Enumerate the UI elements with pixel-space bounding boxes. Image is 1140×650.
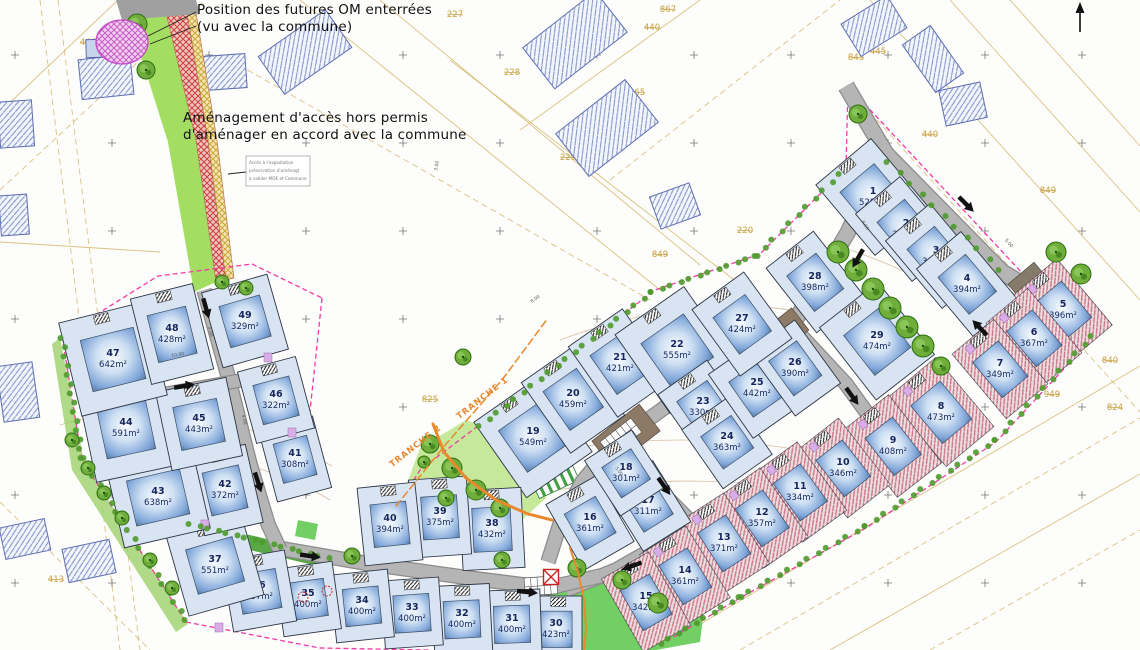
hedge-dot <box>1088 333 1094 339</box>
north-arrow-icon <box>1076 2 1085 32</box>
lot-number: 5 <box>1060 299 1067 310</box>
lot-number: 4 <box>964 273 971 284</box>
hedge-dot <box>135 545 141 551</box>
hedge-dot <box>198 523 204 529</box>
driveway-hatch-icon <box>432 479 448 489</box>
hedge-dot <box>780 228 786 234</box>
hedge-dot <box>745 589 751 595</box>
hedge-dot <box>73 427 79 433</box>
tree-icon <box>239 281 253 295</box>
hedge-dot <box>685 276 691 282</box>
garden-shed <box>215 623 223 632</box>
hedge-dot <box>527 383 533 389</box>
hedge-dot <box>596 329 602 335</box>
tree-icon <box>849 105 867 123</box>
existing-building <box>523 0 628 89</box>
lot-number: 9 <box>890 435 897 446</box>
lot-area: 371m² <box>710 544 738 554</box>
hedge-dot <box>723 263 729 269</box>
hedge-dot <box>666 282 672 288</box>
hedge-dot <box>124 527 130 533</box>
survey-cross-icon <box>787 227 795 235</box>
survey-cross-icon <box>690 227 698 235</box>
hedge-dot <box>664 636 670 642</box>
hedge-dot <box>68 381 74 387</box>
hedge-dot <box>65 363 71 369</box>
existing-building <box>0 519 51 560</box>
hedge-dot <box>573 349 579 355</box>
survey-cross-icon <box>981 403 989 411</box>
hedge-dot <box>777 572 783 578</box>
hedge-dot <box>186 521 192 527</box>
om-note-line2: (vu avec la commune) <box>197 19 432 36</box>
hedge-dot <box>874 517 880 523</box>
driveway-hatch-icon <box>353 573 369 584</box>
hedge-dot <box>784 567 790 573</box>
site-plan-stage: 2272284408652298674468452208498254404458… <box>0 0 1140 650</box>
tree-icon <box>81 461 95 475</box>
cadastral-line <box>930 530 1140 650</box>
lot-area: 349m² <box>986 370 1014 380</box>
lot-area: 400m² <box>294 600 322 610</box>
hedge-dot <box>70 409 76 415</box>
lot-area: 394m² <box>376 525 404 535</box>
hedge-dot <box>736 594 742 600</box>
lot-number: 13 <box>717 532 730 543</box>
survey-cross-icon <box>1078 227 1086 235</box>
hedge-dot <box>742 256 748 262</box>
lot-number: 28 <box>808 271 822 282</box>
lot-number: 42 <box>218 479 231 490</box>
hedge-dot <box>613 316 619 322</box>
hedge-dot <box>522 390 528 396</box>
tree-icon <box>1071 264 1091 284</box>
hedge-dot <box>816 550 822 556</box>
hedge-dot <box>694 620 700 626</box>
hedge-dot <box>736 260 742 266</box>
driveway-hatch-icon <box>298 566 314 577</box>
small-note-text: préservation d'aménagt <box>249 168 300 173</box>
tree-icon <box>143 553 157 567</box>
garden-shed <box>288 428 296 437</box>
tree-icon <box>896 316 918 338</box>
lot-area: 459m² <box>559 400 587 410</box>
lot-area: 311m² <box>634 507 662 517</box>
small-note-text: Accès à l'exploitation <box>249 160 294 165</box>
hedge-dot <box>730 599 736 605</box>
lot-34: 34400m² <box>330 569 395 643</box>
tree-icon <box>862 278 884 300</box>
hedge-dot <box>1024 402 1030 408</box>
leader-line <box>228 172 246 174</box>
tree-icon <box>455 349 471 365</box>
lot-number: 14 <box>678 565 692 576</box>
survey-cross-icon <box>593 227 601 235</box>
tree-icon <box>137 61 155 79</box>
lot-area: 642m² <box>99 360 127 370</box>
hedge-dot <box>842 534 848 540</box>
survey-cross-icon <box>11 579 19 587</box>
survey-cross-icon <box>399 51 407 59</box>
lot-area: 357m² <box>748 519 776 529</box>
hedge-dot <box>133 536 139 542</box>
hedge-dot <box>752 253 758 259</box>
lot-number: 31 <box>505 613 518 624</box>
hedge-dot <box>973 449 979 455</box>
hedge-dot <box>936 474 942 480</box>
survey-cross-icon <box>399 315 407 323</box>
hedge-dot <box>951 224 957 230</box>
hedge-dot <box>967 455 973 461</box>
lot-number: 46 <box>269 389 283 400</box>
lot-area: 363m² <box>713 443 741 453</box>
hedge-dot <box>1056 368 1062 374</box>
lot-number: 34 <box>355 595 369 606</box>
survey-cross-icon <box>787 579 795 587</box>
cadastral-line <box>1010 0 1140 146</box>
hedge-dot <box>109 500 115 506</box>
hedge-dot <box>76 446 82 452</box>
om-note: Position des futures OM enterrées (vu av… <box>197 2 432 36</box>
lot-number: 40 <box>383 513 397 524</box>
hedge-dot <box>898 170 904 176</box>
hedge-dot <box>630 302 636 308</box>
lot-number: 27 <box>735 313 748 324</box>
tree-icon <box>912 335 934 357</box>
tree-icon <box>648 593 668 613</box>
lot-number: 30 <box>549 618 563 629</box>
lot-area: 361m² <box>576 524 604 534</box>
hedge-dot <box>797 212 803 218</box>
hedge-dot <box>1003 428 1009 434</box>
hedge-dot <box>930 480 936 486</box>
lot-area: 424m² <box>728 325 756 335</box>
existing-building <box>649 183 700 229</box>
hedge-dot <box>830 179 836 185</box>
survey-cross-icon <box>1078 491 1086 499</box>
survey-cross-icon <box>399 403 407 411</box>
existing-building <box>841 0 907 56</box>
lot-area: 400m² <box>398 614 426 624</box>
survey-cross-icon <box>690 51 698 59</box>
hedge-dot <box>682 625 688 631</box>
lot-number: 20 <box>566 388 580 399</box>
lot-area: 428m² <box>158 335 186 345</box>
hedge-dot <box>235 532 241 538</box>
hedge-dot <box>928 202 934 208</box>
survey-cross-icon <box>11 315 19 323</box>
lot-number: 23 <box>696 396 709 407</box>
lot-area: 322m² <box>262 401 290 411</box>
hedge-dot <box>562 356 568 362</box>
hedge-dot <box>1067 359 1073 365</box>
lot-area: 301m² <box>612 474 640 484</box>
lot-area: 555m² <box>663 351 691 361</box>
hedge-dot <box>758 583 764 589</box>
lot-area: 591m² <box>112 429 140 439</box>
small-note-text: à valider MOE et Commune <box>249 176 307 181</box>
lot-area: 473m² <box>927 413 955 423</box>
lot-number: 39 <box>433 506 446 517</box>
existing-building <box>0 194 29 236</box>
hedge-dot <box>608 323 614 329</box>
survey-cross-icon <box>1078 579 1086 587</box>
driveway-hatch-icon <box>551 598 566 607</box>
hedge-dot <box>579 343 585 349</box>
hedge-dot <box>906 181 912 187</box>
lot-40: 40394m² <box>357 482 423 566</box>
hedge-dot <box>862 523 868 529</box>
lot-number: 19 <box>526 426 539 437</box>
dimension-label: 8.00 <box>530 294 542 305</box>
lot-area: 394m² <box>953 285 981 295</box>
hedge-dot <box>717 266 723 272</box>
hedge-dot <box>64 372 70 378</box>
survey-cross-icon <box>108 139 116 147</box>
hedge-dot <box>992 437 998 443</box>
hedge-dot <box>996 267 1002 273</box>
hedge-dot <box>58 335 64 341</box>
hedge-dot <box>813 196 819 202</box>
lot-number: 1 <box>870 186 877 197</box>
survey-cross-icon <box>981 139 989 147</box>
tree-icon <box>827 241 849 263</box>
hedge-dot <box>676 631 682 637</box>
survey-cross-icon <box>787 139 795 147</box>
lot-number: 41 <box>288 448 301 459</box>
survey-cross-icon <box>690 491 698 499</box>
hedge-dot <box>1083 342 1089 348</box>
tree-icon <box>438 490 454 506</box>
existing-building <box>939 82 988 126</box>
utility-box-icon <box>544 570 559 585</box>
hedge-dot <box>493 410 499 416</box>
hedge-dot <box>1008 420 1014 426</box>
hedge-dot <box>271 541 277 547</box>
survey-cross-icon <box>981 579 989 587</box>
hedge-dot <box>899 498 905 504</box>
hedge-dot <box>802 204 808 210</box>
hedge-dot <box>943 213 949 219</box>
hedge-dot <box>510 396 516 402</box>
hedge-dot <box>819 187 825 193</box>
hedge-dot <box>892 505 898 511</box>
lot-area: 390m² <box>781 369 809 379</box>
hedge-dot <box>836 171 842 177</box>
hedge-dot <box>158 581 164 587</box>
survey-cross-icon <box>884 579 892 587</box>
existing-building <box>62 539 116 582</box>
access-note-line1: Aménagement d'accès hors permis <box>183 110 466 127</box>
hedge-dot <box>67 390 73 396</box>
tree-icon <box>932 357 950 375</box>
lot-area: 308m² <box>281 460 309 470</box>
lot-number: 49 <box>238 310 251 321</box>
tree-icon <box>879 297 901 319</box>
tree-icon <box>65 433 79 447</box>
lot-number: 33 <box>405 602 418 613</box>
survey-cross-icon <box>690 139 698 147</box>
hedge-dot <box>768 237 774 243</box>
lot-number: 37 <box>208 554 221 565</box>
lot-area: 442m² <box>743 389 771 399</box>
site-plan-svg: 2272284408652298674468452208498254404458… <box>0 0 1140 650</box>
hedge-dot <box>222 530 228 536</box>
hedge-dot <box>539 376 545 382</box>
dimension-label: 3.00 <box>433 160 441 171</box>
hedge-dot <box>278 544 284 550</box>
hedge-dot <box>179 608 185 614</box>
hedge-dot <box>917 486 923 492</box>
existing-building <box>0 362 40 422</box>
hedge-dot <box>718 604 724 610</box>
existing-building <box>902 25 963 92</box>
tree-icon <box>344 548 360 564</box>
hedge-dot <box>948 468 954 474</box>
hedge-dot <box>642 296 648 302</box>
lot-area: 398m² <box>801 283 829 293</box>
lot-number: 7 <box>997 358 1004 369</box>
survey-cross-icon <box>11 51 19 59</box>
survey-cross-icon <box>399 227 407 235</box>
lot-number: 22 <box>670 339 683 350</box>
lot-number: 45 <box>192 413 205 424</box>
survey-cross-icon <box>302 315 310 323</box>
survey-cross-icon <box>593 315 601 323</box>
green-zone <box>295 520 318 540</box>
survey-cross-icon <box>1078 403 1086 411</box>
lot-number: 8 <box>938 401 945 412</box>
survey-cross-icon <box>787 51 795 59</box>
tree-icon <box>97 486 111 500</box>
hedge-dot <box>803 556 809 562</box>
tree-icon <box>115 511 129 525</box>
hedge-dot <box>327 555 333 561</box>
cadastral-line <box>830 474 1140 650</box>
lot-area: 367m² <box>1020 339 1048 349</box>
lot-area: 346m² <box>829 469 857 479</box>
hedge-dot <box>476 423 482 429</box>
hedge-dot <box>987 256 993 262</box>
hedge-dot <box>660 286 666 292</box>
lot-number: 12 <box>755 507 768 518</box>
lot-area: 334m² <box>786 493 814 503</box>
hedge-dot <box>648 289 654 295</box>
lot-area: 443m² <box>185 425 213 435</box>
hedge-dot <box>290 546 296 552</box>
lot-area: 549m² <box>519 438 547 448</box>
survey-cross-icon <box>11 491 19 499</box>
lot-number: 11 <box>793 481 806 492</box>
lot-area: 638m² <box>144 498 172 508</box>
hedge-dot <box>765 578 771 584</box>
hedge-dot <box>880 511 886 517</box>
lot-area: 408m² <box>879 447 907 457</box>
lot-area: 400m² <box>348 607 376 617</box>
survey-cross-icon <box>108 579 116 587</box>
hedge-dot <box>259 539 265 545</box>
hedge-dot <box>965 235 971 241</box>
access-note-line2: d'aménager en accord avec la commune <box>183 127 466 144</box>
om-position-marker <box>96 20 148 64</box>
survey-cross-icon <box>496 139 504 147</box>
hedge-dot <box>182 617 188 623</box>
hedge-dot <box>204 526 210 532</box>
hedge-dot <box>763 245 769 251</box>
lot-area: 400m² <box>498 625 526 635</box>
hedge-dot <box>911 492 917 498</box>
lot-area: 372m² <box>211 491 239 501</box>
existing-building <box>0 100 35 148</box>
lot-number: 47 <box>106 348 119 359</box>
lot-number: 25 <box>750 377 763 388</box>
driveway-hatch-icon <box>380 486 396 497</box>
lot-number: 21 <box>613 352 626 363</box>
hedge-dot <box>1019 411 1025 417</box>
hedge-dot <box>704 269 710 275</box>
survey-cross-icon <box>884 491 892 499</box>
lot-area: 423m² <box>542 630 570 640</box>
hedge-dot <box>504 403 510 409</box>
hedge-dot <box>884 159 890 165</box>
hedge-dot <box>487 416 493 422</box>
hedge-dot <box>544 369 550 375</box>
survey-cross-icon <box>981 51 989 59</box>
survey-cross-icon <box>1078 51 1086 59</box>
hedge-dot <box>785 220 791 226</box>
lot-area: 400m² <box>448 620 476 630</box>
driveway-hatch-icon <box>455 586 470 596</box>
hedge-dot <box>170 599 176 605</box>
lot-number: 26 <box>788 357 802 368</box>
hedge-dot <box>1040 385 1046 391</box>
hedge-dot <box>920 191 926 197</box>
lot-area: 474m² <box>863 342 891 352</box>
tree-icon <box>1046 242 1066 262</box>
lot-number: 16 <box>583 512 597 523</box>
lot-number: 6 <box>1031 327 1038 338</box>
hedge-dot <box>216 528 222 534</box>
hedge-dot <box>954 462 960 468</box>
hedge-dot <box>712 610 718 616</box>
lot-area: 421m² <box>606 364 634 374</box>
hedge-dot <box>797 561 803 567</box>
hedge-dot <box>698 273 704 279</box>
lot-number: 32 <box>455 608 468 619</box>
hedge-dot <box>241 535 247 541</box>
hedge-dot <box>71 400 77 406</box>
hedge-dot <box>855 528 861 534</box>
hedge-dot <box>253 537 259 543</box>
hedge-dot <box>62 344 68 350</box>
hedge-dot <box>985 443 991 449</box>
hedge-dot <box>973 245 979 251</box>
survey-cross-icon <box>496 227 504 235</box>
hedge-dot <box>1051 376 1057 382</box>
hedge-dot <box>78 455 84 461</box>
existing-building <box>203 54 247 91</box>
survey-cross-icon <box>981 491 989 499</box>
lot-number: 43 <box>151 486 164 497</box>
lot-number: 48 <box>165 323 179 334</box>
hedge-dot <box>1072 350 1078 356</box>
tree-icon <box>494 552 510 568</box>
om-note-line1: Position des futures OM enterrées <box>197 2 432 19</box>
survey-cross-icon <box>496 51 504 59</box>
cadastral-line <box>0 242 160 252</box>
tree-icon <box>215 275 229 289</box>
lot-area: 375m² <box>426 518 454 528</box>
